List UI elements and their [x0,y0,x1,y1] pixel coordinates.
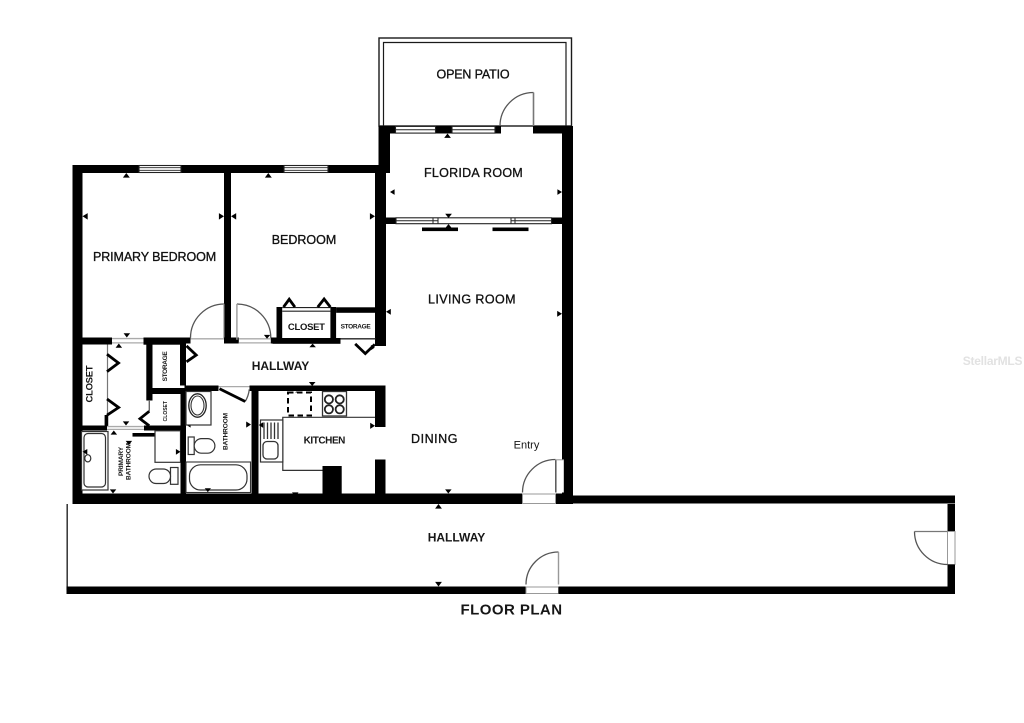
svg-text:Entry: Entry [514,440,540,452]
svg-text:OPEN PATIO: OPEN PATIO [437,68,510,82]
svg-text:BEDROOM: BEDROOM [272,233,337,247]
svg-text:CLOSET: CLOSET [288,322,325,333]
svg-text:PRIMARY: PRIMARY [118,446,125,476]
svg-text:BATHROOM: BATHROOM [126,443,133,480]
svg-text:StellarMLS: StellarMLS [963,354,1023,368]
svg-text:BATHROOM: BATHROOM [223,413,230,450]
svg-text:FLORIDA ROOM: FLORIDA ROOM [424,166,523,180]
svg-text:STORAGE: STORAGE [162,351,169,382]
svg-text:PRIMARY BEDROOM: PRIMARY BEDROOM [93,250,216,264]
svg-text:FLOOR PLAN: FLOOR PLAN [461,602,563,619]
svg-text:DINING: DINING [411,432,458,446]
svg-text:CLOSET: CLOSET [84,365,95,402]
svg-text:HALLWAY: HALLWAY [252,359,310,373]
svg-text:STORAGE: STORAGE [341,324,372,331]
svg-text:CLOSET: CLOSET [163,401,169,421]
svg-text:KITCHEN: KITCHEN [304,436,346,447]
svg-text:HALLWAY: HALLWAY [428,531,486,545]
svg-text:LIVING ROOM: LIVING ROOM [428,293,516,307]
